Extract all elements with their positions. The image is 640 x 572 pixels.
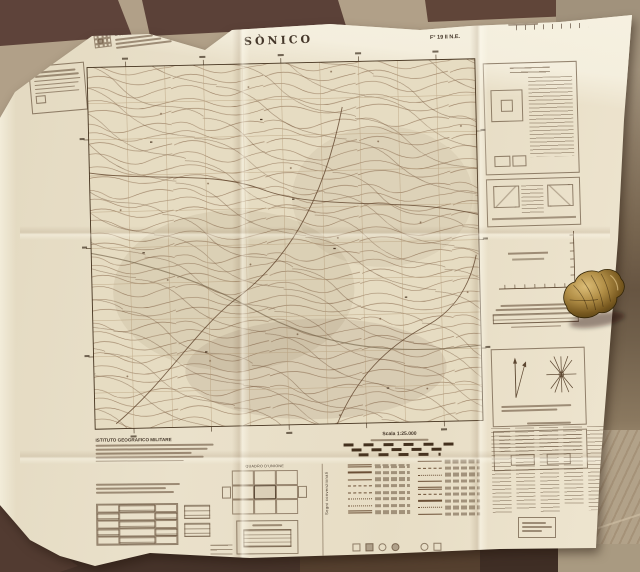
legend-footnote (210, 545, 232, 556)
topographic-map-graphic (78, 43, 493, 444)
legend-row-label (375, 484, 410, 488)
legend-row-label (375, 504, 410, 508)
micro-text-line (96, 483, 180, 485)
diagram-box-2 (486, 177, 581, 228)
micro-text (521, 185, 544, 216)
cell (97, 536, 119, 544)
cell (97, 504, 119, 512)
series-title: CARTA D'ITALIA ALLA SCALA DI 1:25.000 (114, 19, 233, 37)
legend-symbol-column (348, 461, 410, 517)
micro-text-column (528, 76, 574, 157)
church-symbol (378, 543, 386, 551)
micro-text-line (501, 409, 557, 412)
micro-text-line (522, 526, 552, 528)
legend-row (348, 464, 410, 468)
legend-row (348, 477, 410, 481)
fold-highlight-left (0, 60, 16, 520)
legend-row (348, 504, 410, 508)
micro-text-line (96, 444, 214, 447)
mini-box (494, 156, 510, 167)
caption-lines (501, 402, 577, 414)
declination-diagram-box (491, 347, 587, 428)
legend-row (348, 497, 410, 501)
index-heading (527, 422, 571, 424)
boundary-symbol (418, 474, 442, 475)
micro-text-line (508, 19, 548, 22)
fold-crease-horizontal (20, 450, 610, 464)
micro-text-line (522, 530, 542, 532)
grid-tab (298, 486, 307, 498)
diagram-box-1 (483, 61, 580, 176)
sketch-left (493, 185, 520, 208)
cell (155, 512, 177, 520)
cell (155, 504, 177, 512)
micro-text-line (96, 487, 166, 489)
path-symbol (348, 505, 372, 506)
map-body (78, 43, 493, 444)
point-symbol (420, 543, 428, 551)
line-symbol (418, 500, 442, 502)
stamp-box (36, 96, 47, 105)
right-margin-panel (481, 55, 592, 453)
railway-symbol (348, 511, 372, 514)
cell (97, 528, 119, 536)
point-symbol (433, 543, 441, 551)
micro-text-line (522, 522, 546, 524)
cell (276, 470, 298, 485)
cell (155, 520, 177, 528)
map-sheet-wrapper: CARTA D'ITALIA ALLA SCALA DI 1:25.000 SÒ… (0, 0, 640, 572)
path-symbol (348, 499, 372, 500)
line-symbol (418, 481, 442, 482)
legend-row (348, 484, 410, 488)
cell (155, 536, 177, 544)
line-symbol (418, 507, 442, 508)
legend-row-label (375, 477, 410, 481)
road-symbol (348, 479, 372, 480)
scale-bar (344, 443, 456, 446)
legend-row-label (375, 464, 410, 468)
fold-crease-horizontal (20, 226, 610, 240)
index-column (491, 428, 512, 514)
fold-crease-vertical (232, 20, 250, 560)
building-symbol (352, 543, 360, 551)
tower-symbol (391, 543, 399, 551)
micro-text-line (501, 404, 571, 407)
index-column (563, 426, 584, 504)
north-arrows (500, 355, 531, 400)
micro-text (510, 67, 550, 75)
edition-box (518, 517, 556, 538)
mini-box (512, 155, 526, 166)
cell-current-sheet (254, 485, 276, 500)
fold-crease-vertical (470, 20, 488, 560)
legend-row-label (375, 497, 410, 501)
grid-tab (222, 487, 231, 499)
line-symbol (418, 514, 442, 515)
micro-text-line (96, 491, 174, 493)
side-tab-box (184, 505, 210, 519)
index-grid-icon (93, 34, 111, 49)
cell (254, 470, 276, 485)
rule-line (492, 216, 576, 220)
line-symbol (418, 494, 442, 495)
notes-paragraph (96, 481, 184, 496)
road-symbol (348, 465, 372, 468)
publisher-name: ISTITUTO GEOGRAFICO MILITARE (95, 437, 219, 443)
photo-scene: CARTA D'ITALIA ALLA SCALA DI 1:25.000 SÒ… (0, 0, 640, 572)
coordinates-table (96, 503, 178, 546)
index-column (587, 426, 608, 510)
sketch-right (547, 184, 574, 207)
index-column (539, 427, 560, 513)
legend-row-label (375, 510, 410, 514)
cell (276, 485, 298, 500)
legend-row (348, 490, 410, 494)
micro-text-line (371, 439, 429, 441)
legend-row-label (375, 490, 410, 494)
index-column (515, 427, 536, 509)
compass-star-sketch (544, 354, 579, 395)
track-symbol (348, 485, 372, 486)
cell (254, 499, 276, 514)
micro-text-line (508, 16, 526, 18)
line-symbol (418, 486, 442, 489)
cell (155, 528, 177, 536)
cell (97, 520, 119, 528)
scale-label: Scala 1:25.000 (337, 431, 461, 438)
boundary-symbol (418, 468, 442, 469)
micro-text-line (35, 89, 79, 94)
legend-row-label (375, 471, 410, 475)
micro-text-line (252, 524, 282, 526)
track-symbol (348, 492, 372, 493)
square-diagram (490, 89, 523, 122)
building-symbol (365, 543, 373, 551)
legend-vertical-label: Segni convenzionali (324, 472, 329, 515)
road-symbol (348, 472, 372, 474)
inner-box (243, 528, 291, 546)
legend-row (348, 471, 410, 475)
cell (97, 512, 119, 520)
inner-square (501, 100, 513, 112)
micro-text-line (511, 325, 561, 328)
place-name-index (491, 419, 609, 525)
brass-clasp-graphic (553, 261, 636, 338)
symbol-cluster (352, 543, 399, 551)
map-sheet: CARTA D'ITALIA ALLA SCALA DI 1:25.000 SÒ… (0, 0, 640, 572)
legend-row (348, 510, 410, 514)
cell (276, 499, 298, 514)
cell (120, 536, 155, 544)
symbol-cluster (420, 543, 441, 551)
side-tab-box (184, 523, 210, 537)
brass-clasp (553, 261, 637, 340)
